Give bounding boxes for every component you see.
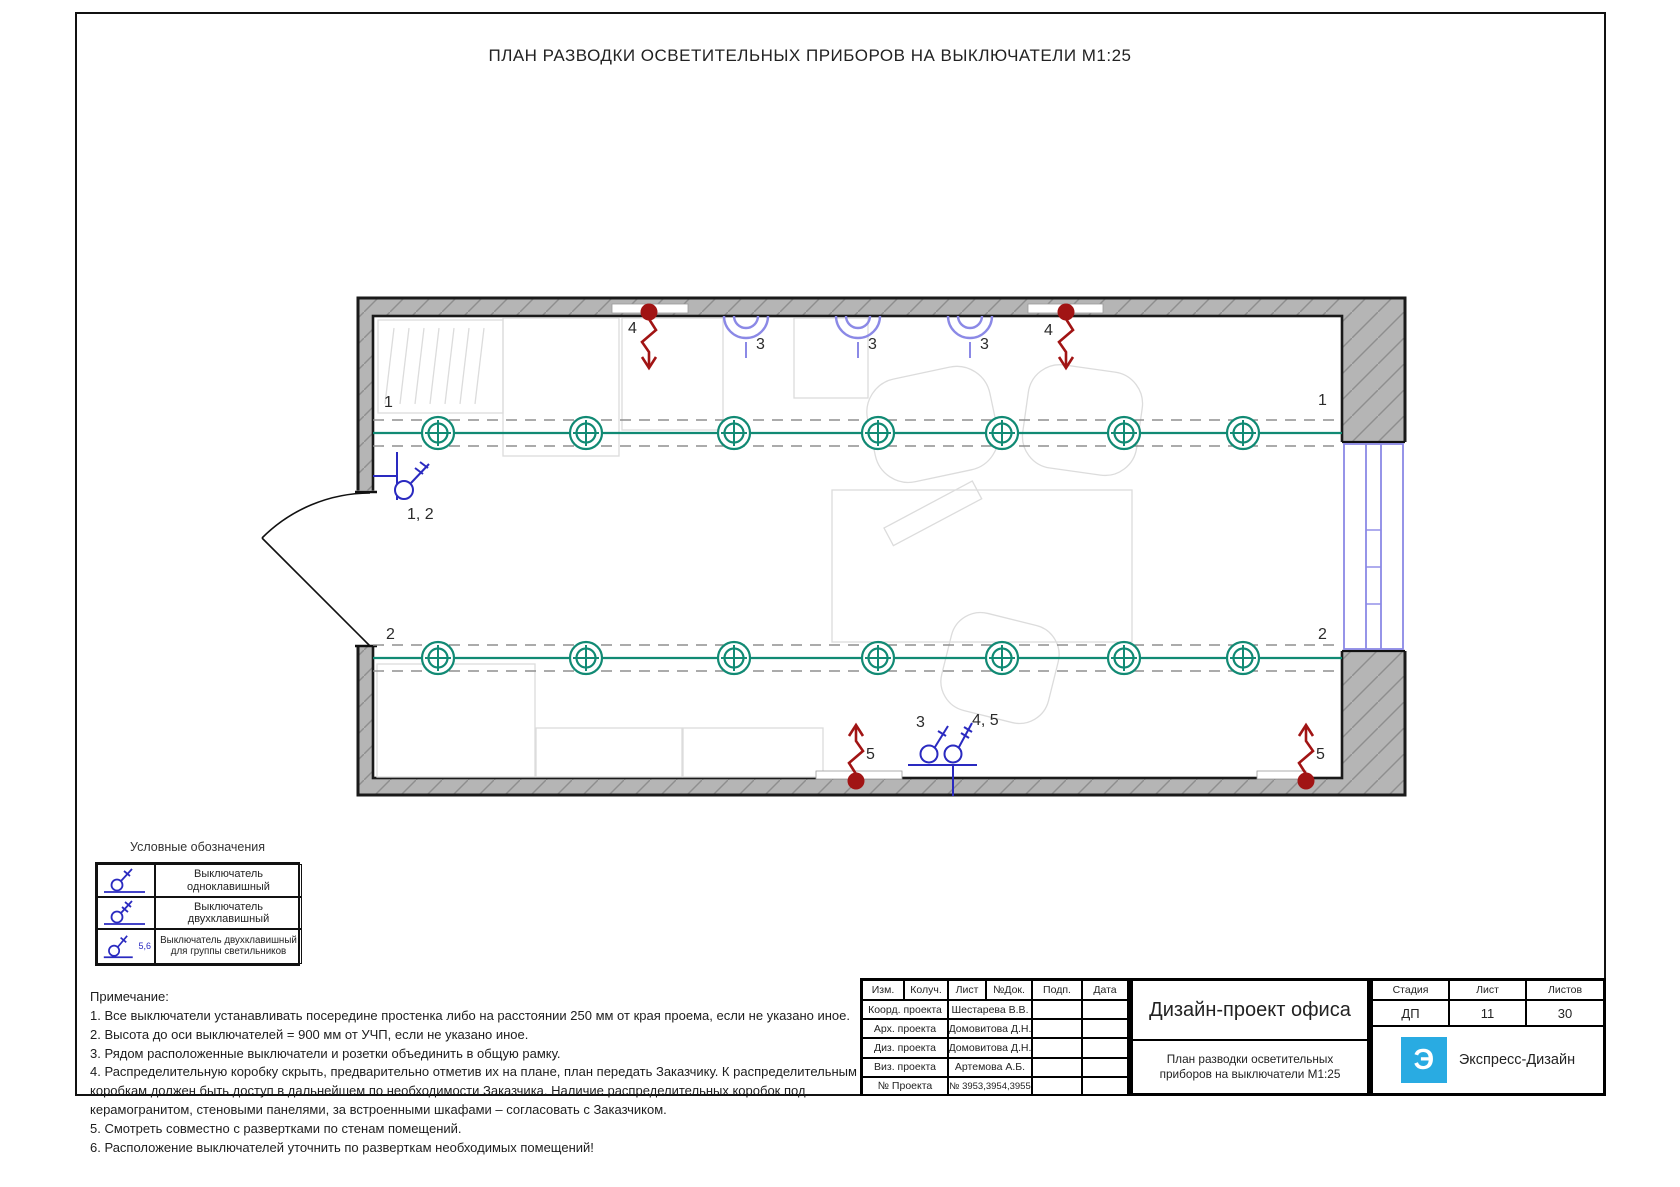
sheet-label: Лист [1449,980,1526,1000]
group-label-2-left: 2 [386,626,395,644]
switch-1key-icon [97,864,155,897]
legend-title: Условные обозначения [95,840,300,854]
sheets-value: 30 [1526,1000,1604,1026]
ceiling-light-icon [862,642,894,674]
company-name: Экспресс-Дизайн [1459,1052,1575,1068]
ceiling-light-icon [1108,642,1140,674]
stage-label: Стадия [1372,980,1449,1000]
ceiling-light-icon [718,642,750,674]
ceiling-outlet-icon [1058,304,1075,369]
tb-header-cell: Колуч. [904,980,948,1000]
switch-2key-group-icon: 5,6 [97,929,155,964]
tb-role: Арх. проекта [862,1019,948,1038]
sheets-label: Листов [1526,980,1604,1000]
floor-outlet-icon [1298,725,1315,790]
tb-signature-cell [1032,1077,1082,1096]
titleblock-revision-table: Изм. Колуч. Лист №Док. Подп. Дата Коорд.… [860,978,1130,1096]
group-label-1-left: 1 [384,394,393,412]
tb-header-cell: Лист [948,980,986,1000]
tb-date-cell [1082,1019,1128,1038]
furniture [377,318,1147,777]
tb-header-cell: №Док. [986,980,1032,1000]
wall-slots [612,304,1306,779]
company-cell: Э Экспресс-Дизайн [1372,1026,1604,1094]
ceiling-light-icon [1108,417,1140,449]
titleblock-center: Дизайн-проект офиса План разводки освети… [1130,978,1370,1096]
switch-group-label: 3 [916,714,925,732]
wall-light-label: 3 [980,336,989,354]
tb-name: Домовитова Д.Н. [948,1019,1032,1038]
ceiling-outlet-label: 4 [628,320,637,338]
door [262,491,378,647]
light-row-2 [373,642,1342,674]
ceiling-outlet-icon [641,304,658,369]
switch-two-label: 4, 5 [972,712,999,730]
legend-table: Выключатель одноклавишный Выключатель дв… [95,862,300,966]
tb-signature-cell [1032,1038,1082,1057]
bottom-outlet-label: 5 [1316,746,1325,764]
tb-name: Артемова А.Б. [948,1058,1032,1077]
ceiling-light-icon [986,642,1018,674]
note-item: 4. Распределительную коробку скрыть, пре… [90,1063,900,1120]
ceiling-light-icon [862,417,894,449]
ceiling-light-icon [570,642,602,674]
company-logo: Э [1401,1037,1447,1083]
tb-name: № 3953,3954,3955 [948,1077,1032,1096]
tb-role: Виз. проекта [862,1058,948,1077]
tb-name: Домовитова Д.Н. [948,1038,1032,1057]
note-item: 5. Смотреть совместно с развертками по с… [90,1120,900,1139]
tb-header-cell: Подп. [1032,980,1082,1000]
tb-signature-cell [1032,1058,1082,1077]
legend-row-label: Выключатель двухклавишный [155,897,302,929]
group-label-1-right: 1 [1318,392,1327,410]
tb-date-cell [1082,1038,1128,1057]
stage-value: ДП [1372,1000,1449,1026]
tb-date-cell [1082,1058,1128,1077]
tb-header-cell: Дата [1082,980,1128,1000]
note-item: 1. Все выключатели устанавливать посеред… [90,1007,900,1026]
ceiling-light-icon [986,417,1018,449]
tb-signature-cell [1032,1019,1082,1038]
tb-role: Диз. проекта [862,1038,948,1057]
notes-title: Примечание: [90,988,900,1007]
titleblock-right: Стадия Лист Листов ДП 11 30 Э Экспресс-Д… [1370,978,1606,1096]
wall-light-label: 3 [756,336,765,354]
tb-name: Шестарева В.В. [948,1000,1032,1019]
ceiling-light-icon [1227,642,1259,674]
ceiling-light-icon [1227,417,1259,449]
legend-badge: 5,6 [138,942,151,952]
walls [358,298,1405,795]
door-switch-icon [373,452,429,500]
window [1339,442,1409,651]
group-label-2-right: 2 [1318,626,1327,644]
floor-outlet-icon [848,725,865,790]
ceiling-light-icon [718,417,750,449]
ceiling-light-icon [570,417,602,449]
titleblock-sheet-title: План разводки осветительных приборов на … [1132,1040,1368,1094]
tb-header-cell: Изм. [862,980,904,1000]
tb-date-cell [1082,1000,1128,1019]
tb-role: № Проекта [862,1077,948,1096]
tb-role: Коорд. проекта [862,1000,948,1019]
light-row-1 [373,417,1342,449]
tb-date-cell [1082,1077,1128,1096]
ceiling-outlet-label: 4 [1044,322,1053,340]
tb-signature-cell [1032,1000,1082,1019]
legend-row-label: Выключатель одноклавишный [155,864,302,897]
switch-2key-icon [97,897,155,929]
note-item: 6. Расположение выключателей уточнить по… [90,1139,900,1158]
door-switch-label: 1, 2 [407,506,434,524]
project-title: Дизайн-проект офиса [1132,980,1368,1040]
notes: Примечание: 1. Все выключатели устанавли… [90,988,900,1158]
note-item: 3. Рядом расположенные выключатели и роз… [90,1045,900,1064]
sheet-value: 11 [1449,1000,1526,1026]
legend-row-label: Выключатель двухклавишный для группы све… [155,929,302,964]
bottom-outlet-label: 5 [866,746,875,764]
note-item: 2. Высота до оси выключателей = 900 мм о… [90,1026,900,1045]
wall-light-label: 3 [868,336,877,354]
ceiling-light-icon [422,642,454,674]
drawing-sheet: ПЛАН РАЗВОДКИ ОСВЕТИТЕЛЬНЫХ ПРИБОРОВ НА … [0,0,1680,1187]
ceiling-light-icon [422,417,454,449]
